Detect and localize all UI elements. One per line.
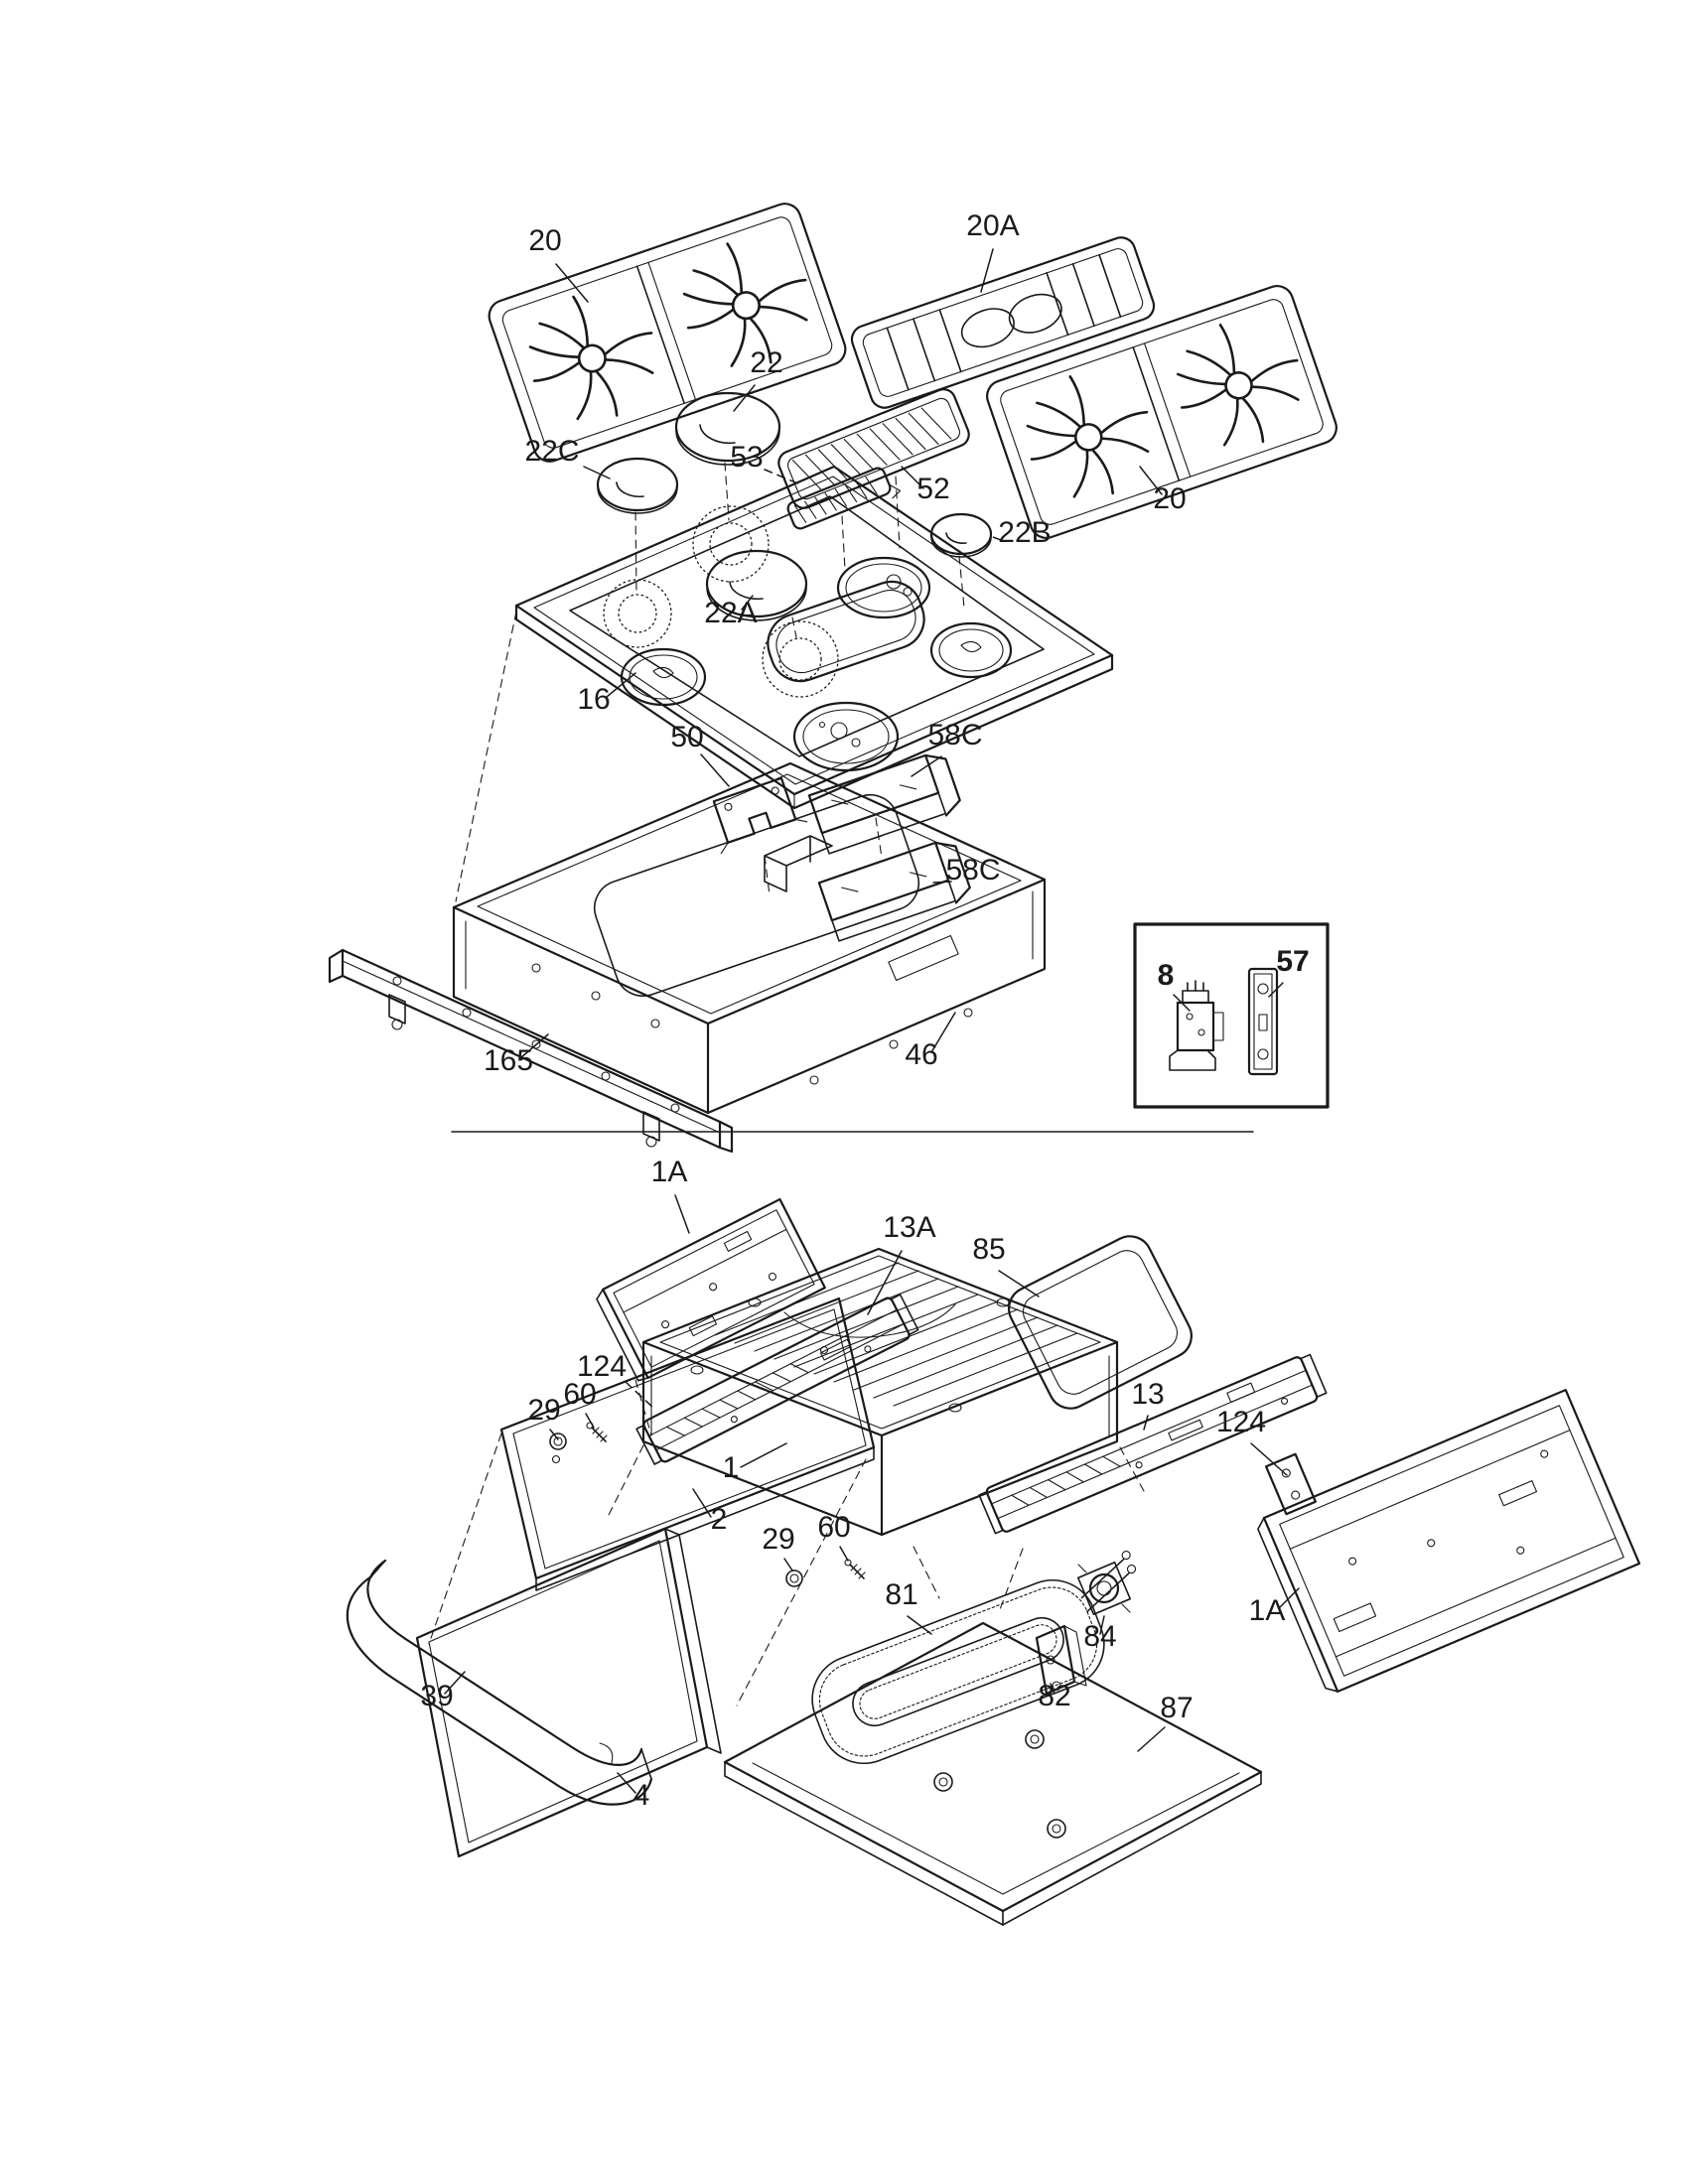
part-label-50-10: 50 xyxy=(670,721,703,753)
part-label-82-31: 82 xyxy=(1038,1680,1070,1712)
part-label-81-29: 81 xyxy=(885,1578,917,1611)
part-label-87-35: 87 xyxy=(1160,1692,1193,1724)
part-label-22b-7: 22B xyxy=(998,516,1051,549)
part-label-20a-1: 20A xyxy=(966,209,1019,242)
drawer-assembly xyxy=(348,1199,1639,1925)
leader-line-20a-1 xyxy=(981,249,993,292)
part-label-4-34: 4 xyxy=(633,1779,650,1812)
leader-line-13a-18 xyxy=(868,1251,902,1314)
part-label-46-14: 46 xyxy=(905,1038,937,1071)
part-label-16-9: 16 xyxy=(577,683,610,716)
leader-line-2-26 xyxy=(693,1489,711,1517)
part-label-2-26: 2 xyxy=(711,1503,728,1536)
burner-cap-22C xyxy=(598,459,677,513)
parts-diagram-page: 2020A222022C535222B22A165058C58C16546857… xyxy=(0,0,1688,2184)
part-label-1a-17: 1A xyxy=(651,1156,688,1188)
wire-rack-85 xyxy=(1002,1229,1199,1416)
part-label-84-30: 84 xyxy=(1083,1620,1116,1653)
screw-60-center xyxy=(845,1560,865,1578)
part-label-1-25: 1 xyxy=(723,1451,740,1484)
part-label-20-0: 20 xyxy=(528,224,561,257)
leader-line-29-27 xyxy=(784,1559,792,1570)
leader-line-50-10 xyxy=(701,754,729,786)
part-label-8-15: 8 xyxy=(1158,959,1175,992)
projection-lines-top xyxy=(456,463,964,901)
drawer-handle-39 xyxy=(348,1561,651,1805)
side-panel-1A-right xyxy=(1255,1390,1639,1696)
part-label-39-33: 39 xyxy=(420,1680,453,1712)
leader-line-1a-17 xyxy=(675,1195,689,1233)
part-label-165-13: 165 xyxy=(484,1044,533,1077)
drawer-bottom-panel-87 xyxy=(725,1623,1261,1925)
part-label-22-2: 22 xyxy=(750,346,782,379)
spark-module-8 xyxy=(1170,981,1223,1070)
mounting-plate-57 xyxy=(1249,969,1277,1074)
part-label-60-22: 60 xyxy=(563,1378,596,1411)
part-label-13a-18: 13A xyxy=(883,1211,935,1244)
burner-cap-22 xyxy=(676,393,779,465)
part-label-29-27: 29 xyxy=(762,1523,794,1556)
spacer-58C-upper xyxy=(809,750,963,856)
leader-line-20-0 xyxy=(556,264,588,302)
part-label-1a-32: 1A xyxy=(1249,1594,1286,1627)
part-label-60-28: 60 xyxy=(817,1511,850,1544)
leader-line-60-28 xyxy=(840,1547,848,1561)
burner-box-46 xyxy=(454,763,1045,1113)
part-label-29-21: 29 xyxy=(527,1394,560,1427)
part-label-20-3: 20 xyxy=(1153,482,1186,515)
part-label-22c-4: 22C xyxy=(524,435,579,468)
part-label-57-16: 57 xyxy=(1276,945,1309,978)
part-label-124-24: 124 xyxy=(1216,1406,1266,1438)
screw-60-left xyxy=(587,1423,607,1441)
burner-grate-center xyxy=(848,234,1158,412)
part-label-58c-12: 58C xyxy=(945,854,1000,887)
shoulder-screw-29-left xyxy=(550,1433,566,1449)
part-label-52-6: 52 xyxy=(916,473,949,505)
bracket-50 xyxy=(704,775,807,854)
part-label-13-23: 13 xyxy=(1131,1378,1164,1411)
element-receptacle-84 xyxy=(1078,1563,1130,1614)
leader-line-1-25 xyxy=(741,1443,786,1467)
exploded-view-diagram: 2020A222022C535222B22A165058C58C16546857… xyxy=(0,0,1688,2184)
heating-element-81 xyxy=(799,1549,1167,1777)
leader-line-87-35 xyxy=(1138,1727,1165,1751)
burner-cap-22B xyxy=(931,514,991,557)
part-label-85-19: 85 xyxy=(972,1233,1005,1266)
part-label-53-5: 53 xyxy=(730,441,763,474)
part-label-22a-8: 22A xyxy=(704,597,757,629)
cooktop-assembly xyxy=(330,200,1340,1152)
part-label-58c-11: 58C xyxy=(927,719,982,751)
